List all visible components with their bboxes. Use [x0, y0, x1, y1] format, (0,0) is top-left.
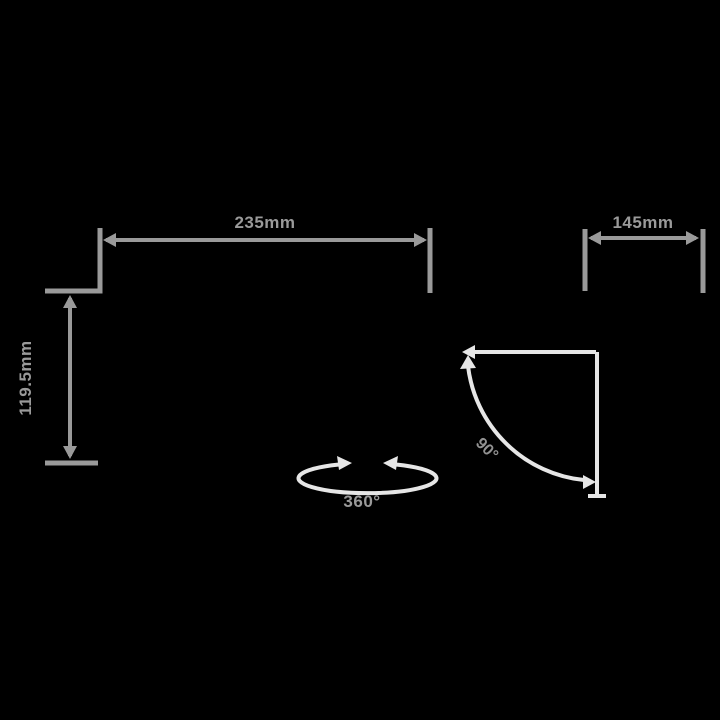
arrow-left-icon — [588, 231, 601, 245]
width-extension-left — [45, 228, 100, 291]
tilt-angle-label: 90° — [472, 435, 501, 464]
height-dimension: 119.5mm — [16, 295, 98, 463]
rotation-arrow-left-icon — [383, 456, 398, 470]
rotation-angle-label: 360° — [343, 492, 380, 511]
height-label: 119.5mm — [16, 340, 35, 415]
depth-label: 145mm — [612, 213, 673, 232]
arrow-right-icon — [414, 233, 427, 247]
arrow-right-icon — [686, 231, 699, 245]
depth-dimension: 145mm — [585, 213, 703, 293]
rotation-indicator: 360° — [299, 456, 437, 511]
width-label: 235mm — [234, 213, 295, 232]
tilt-angle-indicator: 90° — [460, 345, 606, 496]
circular-rotation-arrows-icon — [299, 464, 437, 493]
arc-arrow-right-icon — [583, 475, 596, 489]
quarter-circle-tilt-arc-icon — [468, 366, 584, 480]
width-dimension: 235mm — [45, 213, 430, 293]
rotation-arrow-right-icon — [337, 456, 352, 470]
dimension-diagram: 235mm 119.5mm 145mm — [0, 0, 720, 720]
diagram-svg: 235mm 119.5mm 145mm — [0, 0, 720, 720]
arrow-left-icon — [103, 233, 116, 247]
arrow-down-icon — [63, 446, 77, 459]
arrow-up-icon — [63, 295, 77, 308]
